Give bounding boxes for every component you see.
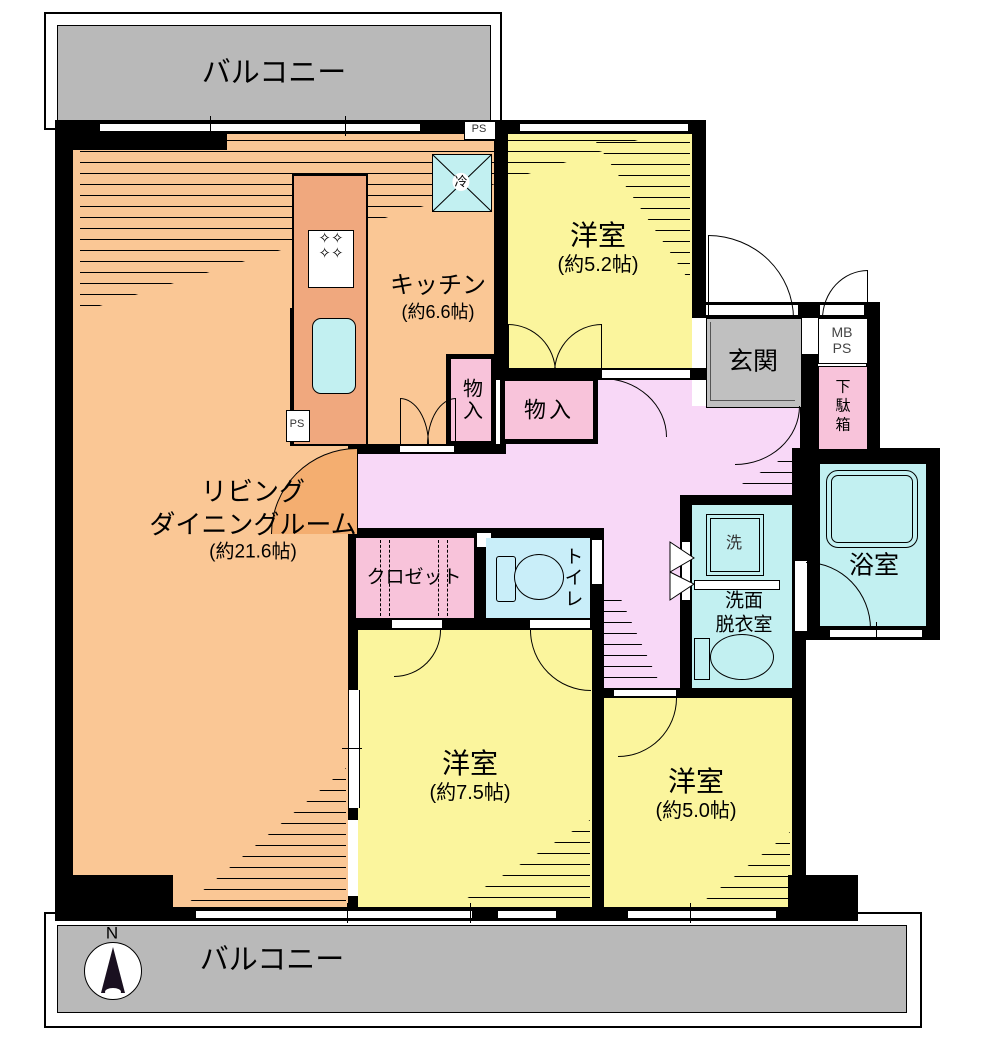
refrigerator-label: 冷 [452, 173, 469, 191]
opening-bedroom-tr [602, 370, 690, 378]
bathroom-label: 浴室 [849, 550, 899, 581]
toilet-tank [496, 556, 516, 602]
toilet-label: トイレ [559, 547, 586, 610]
opening-closet-bm [392, 620, 442, 628]
wall-corner-bottomleft [55, 875, 173, 921]
toilet-bowl [514, 554, 564, 600]
window-tick [690, 903, 691, 923]
wall-right-lower [792, 640, 806, 921]
bedroom-bm-size: (約7.5帖) [429, 781, 510, 806]
washroom-label: 洗面 脱衣室 [715, 589, 772, 637]
balcony-top-label: バルコニー [202, 55, 346, 91]
opening-kitchen [400, 446, 454, 452]
window-tick [470, 903, 471, 923]
compass-icon [84, 942, 142, 1000]
opening-hall-bm [530, 620, 590, 628]
ldk-size: (約21.6帖) [149, 541, 356, 565]
storage-small-label: 物入 [457, 378, 486, 422]
meter-box-label: MB PS [832, 324, 853, 356]
compass-north-label: N [106, 922, 118, 943]
ldk-label: リビング ダイニングルーム (約21.6帖) [149, 476, 356, 565]
wash-cabinet [694, 638, 710, 680]
washer-label: 洗 [726, 534, 742, 554]
bedroom-bm-label: 洋室 (約7.5帖) [429, 746, 510, 806]
bedroom-br-size: (約5.0帖) [655, 799, 736, 824]
opening-hall-br [614, 690, 676, 696]
burner-icon: ✧✧ [318, 245, 343, 262]
kitchen-sink [312, 318, 356, 394]
ps-kitchen-label: PS [290, 418, 305, 432]
kitchen-size: (約6.6帖) [390, 301, 486, 324]
bathtub [826, 470, 918, 548]
door-arc-meter [822, 270, 868, 319]
shoe-cabinet-label: 下駄箱 [832, 379, 853, 436]
wall-bedroom-divider [592, 630, 604, 907]
storage-large-label: 物入 [524, 396, 574, 424]
window-bedroom-br-bottom [628, 910, 776, 919]
floor-plan: バルコニー バルコニー N [0, 0, 984, 1056]
wall-hall-shoebox [800, 354, 818, 448]
window-tick [342, 748, 362, 749]
balcony-bottom [57, 925, 907, 1013]
opening-toilet [592, 540, 602, 584]
wall-ldk-bm-b [348, 808, 358, 820]
window-bedroom-bm-bottom [498, 910, 556, 919]
window-ldk-top [100, 123, 420, 132]
window-tick [345, 116, 346, 136]
balcony-bottom-label: バルコニー [200, 942, 344, 978]
wall-bath-top [792, 448, 940, 462]
bedroom-tr-size: (約5.2帖) [557, 253, 638, 278]
bedroom-tr-label: 洋室 (約5.2帖) [557, 218, 638, 278]
window-ldk-bedroom-bm [348, 690, 360, 808]
window-tick [210, 116, 211, 136]
wall-kitchen-bedroom [494, 120, 508, 378]
closet-label: クロゼット [366, 566, 461, 590]
wall-ldk-bm-c [348, 896, 358, 910]
window-tick [876, 622, 877, 640]
ps-top-label: PS [472, 123, 487, 137]
ldk-label-line1: リビング [149, 476, 356, 509]
wall-right-upper [866, 302, 880, 462]
stove: ✧✧ ✧✧ [308, 230, 354, 288]
folding-door-icon [668, 540, 696, 602]
wall-bedroom-tr-right [692, 120, 706, 316]
wash-basin [710, 634, 774, 680]
window-tick [347, 903, 348, 923]
window-bedroom-tr-top [520, 123, 688, 132]
window-ldk-bottom [196, 910, 472, 919]
wall-ldk-bm-a [348, 626, 358, 690]
wall-left [55, 120, 73, 921]
entrance-label: 玄関 [728, 346, 778, 377]
bedroom-br-label: 洋室 (約5.0帖) [655, 764, 736, 824]
wall-wash-top [680, 495, 792, 505]
door-arc-front [708, 235, 794, 319]
kitchen-label: キッチン (約6.6帖) [390, 271, 486, 324]
wall-bath-right [926, 448, 940, 640]
kitchen-counter [292, 174, 368, 446]
ldk-label-line2: ダイニングルーム [149, 508, 356, 541]
